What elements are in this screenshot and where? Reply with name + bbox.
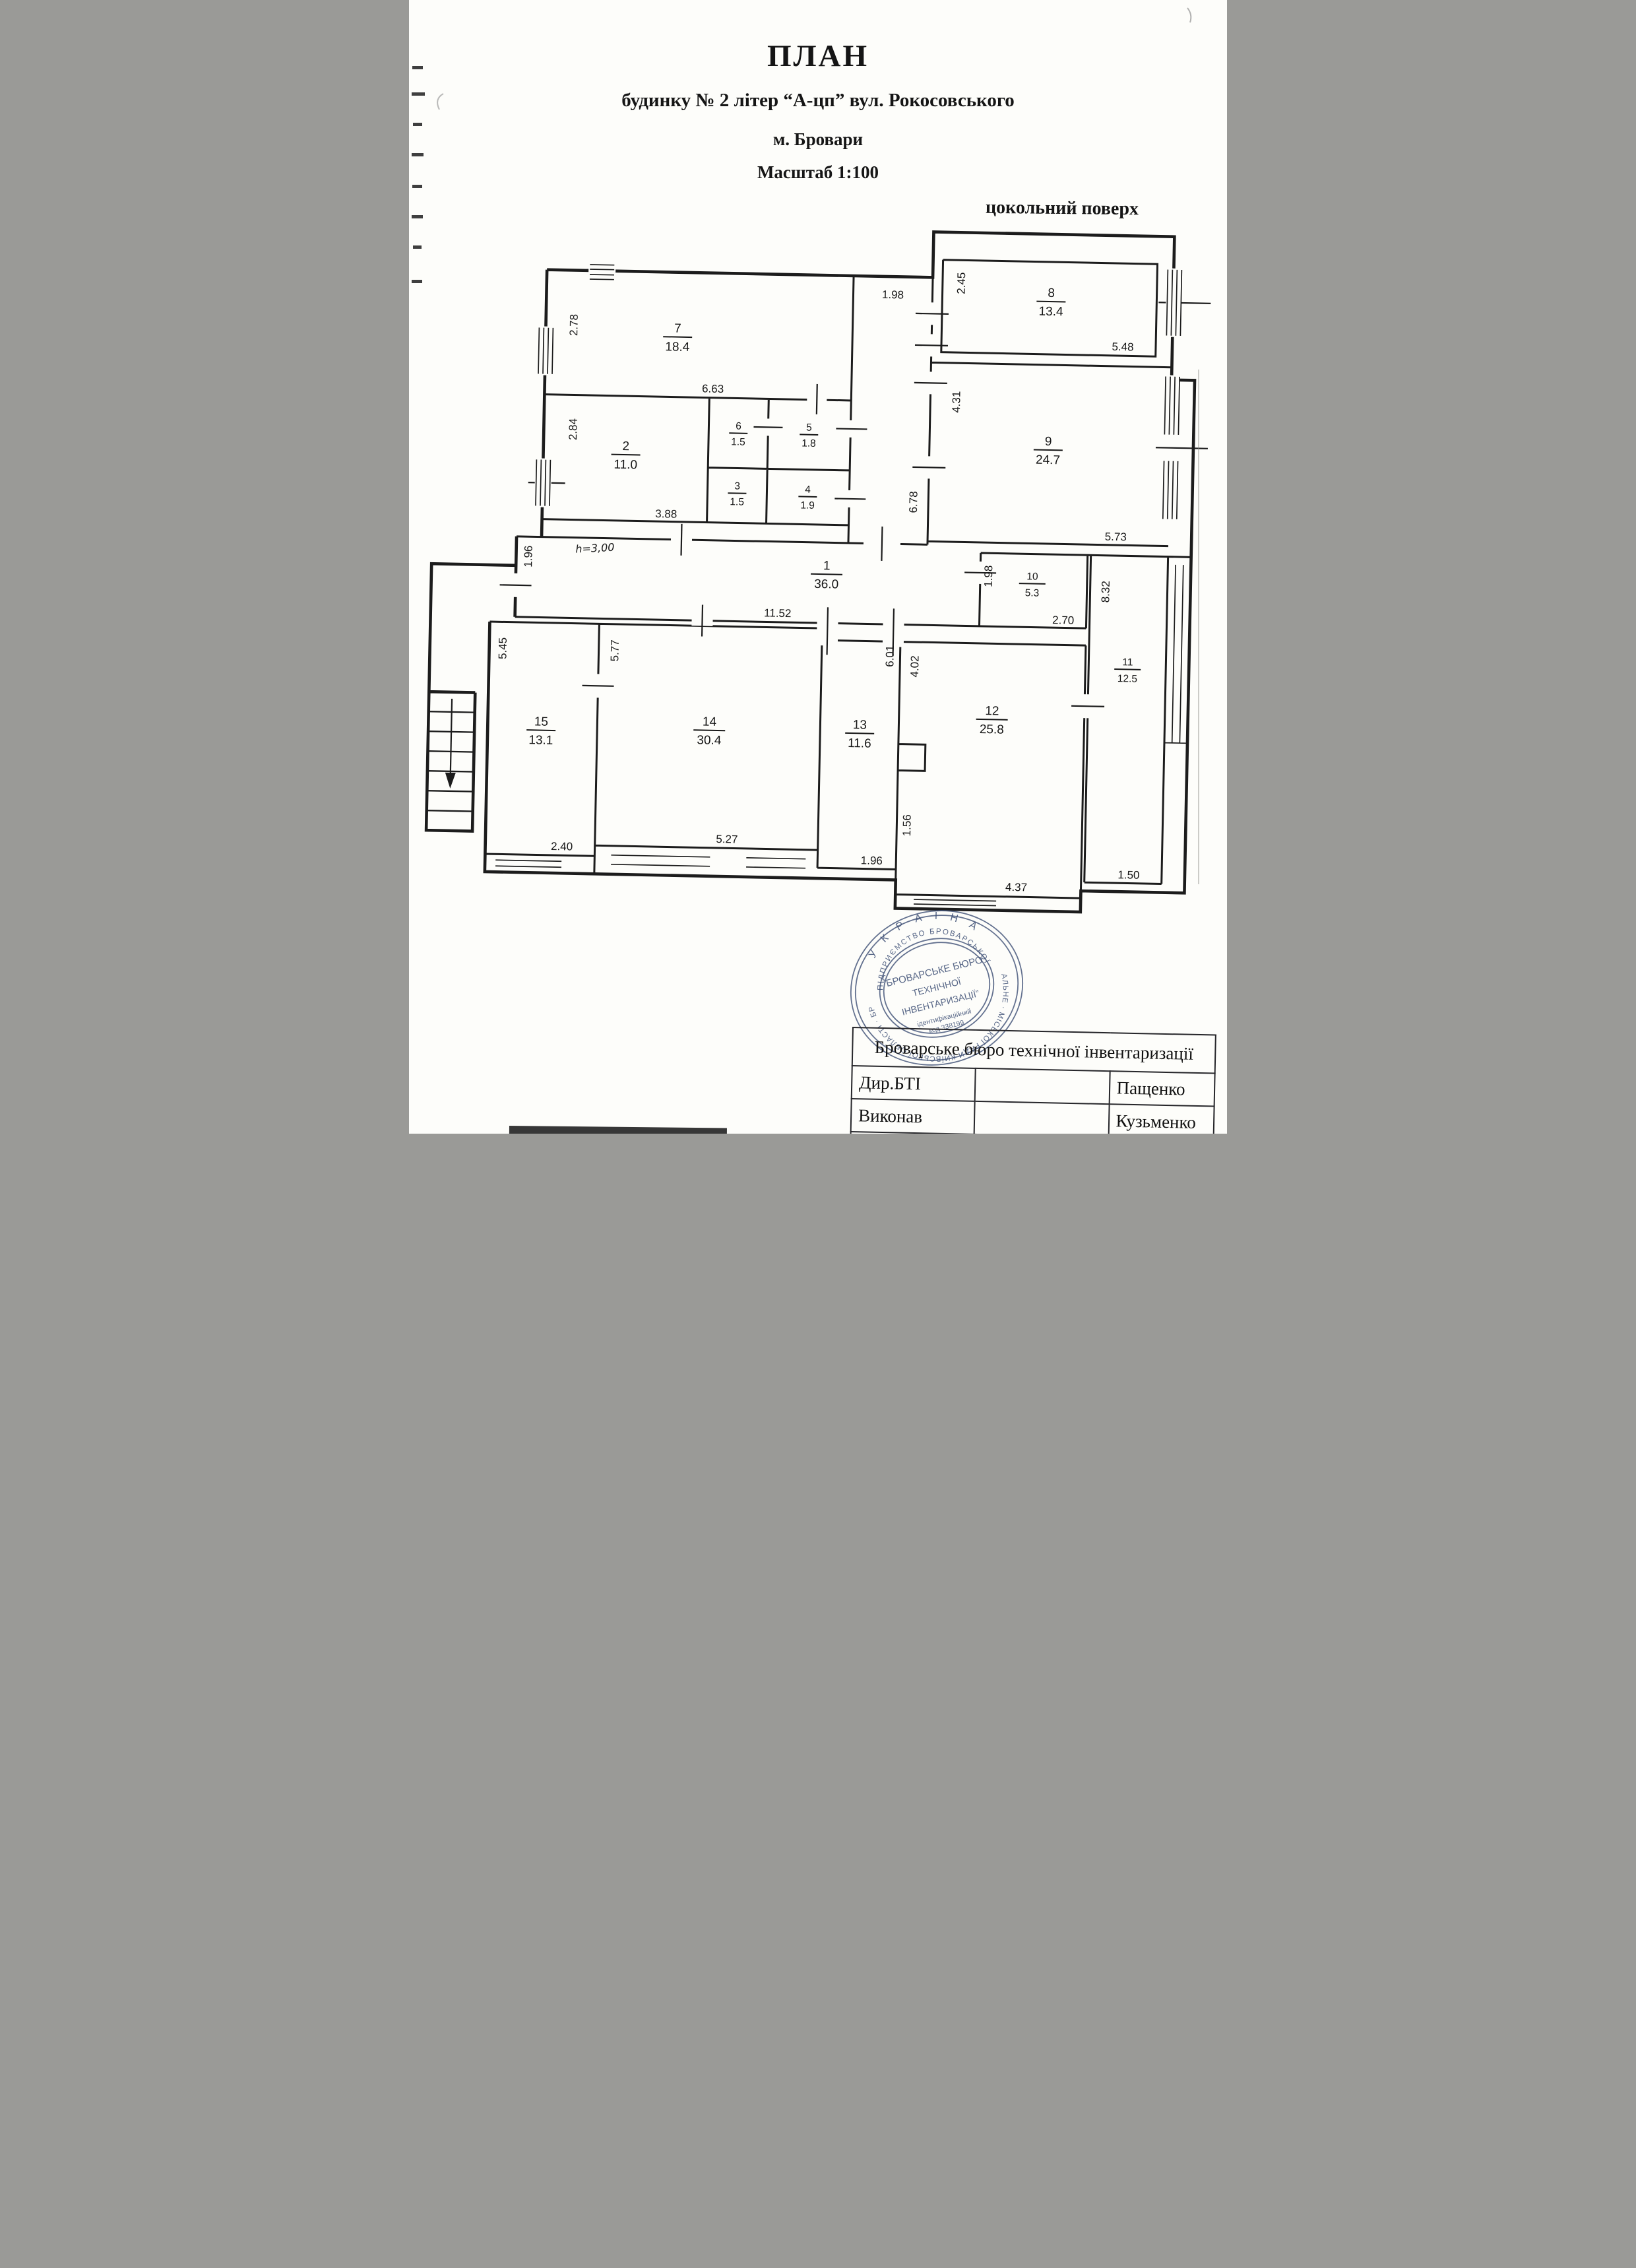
svg-text:2: 2 — [622, 439, 629, 453]
dim-1-98-top: 1.98 — [882, 288, 904, 302]
stamp-center-line3: ІНВЕНТАРИЗАЦІЇ” — [900, 988, 980, 1018]
room-label-6: 61.5 — [729, 420, 748, 448]
svg-text:18.4: 18.4 — [665, 340, 690, 354]
svg-text:3: 3 — [734, 480, 740, 492]
dim-1-96-r13: 1.96 — [861, 854, 883, 867]
dim-3-88: 3.88 — [655, 507, 677, 521]
signature-cell — [975, 1068, 1110, 1104]
dim-5-48: 5.48 — [1112, 340, 1133, 354]
svg-text:1.5: 1.5 — [731, 436, 745, 447]
svg-text:11.6: 11.6 — [848, 736, 871, 751]
dim-1-98-r10: 1.98 — [982, 565, 995, 587]
svg-text:9: 9 — [1045, 435, 1052, 449]
role-cell: Дир.БТІ — [852, 1066, 976, 1101]
svg-text:5: 5 — [806, 422, 812, 434]
dim-4-37: 4.37 — [1005, 881, 1027, 894]
room-label-12: 1225.8 — [976, 704, 1008, 737]
building-address: будинку № 2 літер “А-цп” вул. Рокосовськ… — [409, 90, 1227, 112]
room-label-11: 1112.5 — [1114, 657, 1141, 685]
dim-1-50: 1.50 — [1117, 868, 1139, 882]
svg-text:30.4: 30.4 — [697, 733, 722, 748]
dim-6-78: 6.78 — [907, 491, 920, 513]
svg-text:1.5: 1.5 — [730, 496, 744, 507]
room-label-13: 1311.6 — [845, 718, 875, 751]
dim-2-45: 2.45 — [955, 273, 968, 294]
dim-2-70: 2.70 — [1052, 614, 1074, 627]
plan-walls-outer — [425, 222, 1197, 914]
svg-text:12: 12 — [985, 704, 999, 718]
svg-text:4: 4 — [805, 484, 811, 496]
name-cell: Кузьменко — [1108, 1104, 1214, 1134]
svg-text:1: 1 — [823, 559, 831, 573]
dim-6-01: 6.01 — [883, 645, 897, 666]
svg-text:8: 8 — [1048, 286, 1055, 300]
room-label-10: 105.3 — [1019, 571, 1046, 599]
stamp-center-line1: “БРОВАРСЬКЕ БЮРО — [882, 954, 984, 990]
svg-text:7: 7 — [674, 322, 681, 336]
room-label-9: 924.7 — [1033, 435, 1063, 468]
dim-5-45: 5.45 — [496, 637, 509, 659]
svg-text:1.8: 1.8 — [802, 437, 816, 449]
svg-text:13: 13 — [853, 718, 867, 732]
page-title: ПЛАН — [409, 38, 1227, 74]
svg-text:5.3: 5.3 — [1025, 587, 1040, 599]
stamp-center-line2: ТЕХНІЧНОЇ — [911, 976, 962, 998]
svg-text:25.8: 25.8 — [980, 723, 1004, 737]
svg-text:10: 10 — [1026, 571, 1038, 582]
dim-5-73: 5.73 — [1104, 531, 1126, 544]
scanned-plan-page: ПЛАН будинку № 2 літер “А-цп” вул. Рокос… — [409, 0, 1227, 1134]
room-label-1: 136.0 — [810, 559, 842, 592]
down-arrow-icon — [445, 773, 455, 789]
svg-text:1.9: 1.9 — [800, 500, 815, 511]
window-symbols — [495, 255, 1197, 914]
room-label-3: 31.5 — [728, 480, 747, 508]
door-openings — [497, 289, 1211, 720]
dim-8-32: 8.32 — [1099, 581, 1112, 602]
room-label-7: 718.4 — [663, 321, 693, 354]
dim-4-31: 4.31 — [950, 391, 963, 412]
dim-5-27: 5.27 — [716, 833, 738, 846]
svg-text:36.0: 36.0 — [814, 577, 838, 592]
room-label-14: 1430.4 — [693, 715, 726, 748]
staircase — [427, 698, 475, 811]
plan-geometry: 136.0 211.0 31.5 41.9 51.8 61.5 718.4 81… — [425, 222, 1212, 914]
room-label-2: 211.0 — [611, 439, 641, 472]
stamp-ring-top: ПІДПРИЄМСТВО БРОВАРСЬКОЇ — [865, 915, 991, 992]
room-label-8: 813.4 — [1036, 286, 1066, 319]
dim-2-84: 2.84 — [567, 418, 580, 440]
svg-text:24.7: 24.7 — [1036, 453, 1060, 468]
svg-text:14: 14 — [703, 715, 717, 729]
svg-text:12.5: 12.5 — [1117, 673, 1138, 685]
signature-table: Броварське бюро технічної інвентаризації… — [849, 1027, 1216, 1134]
floor-label: цокольний поверх — [910, 197, 1214, 221]
height-note: h=3,00 — [575, 541, 615, 556]
signature-cell — [974, 1101, 1110, 1134]
dim-6-63: 6.63 — [702, 382, 724, 395]
name-cell: Пащенко — [1109, 1071, 1215, 1106]
room-label-15: 1513.1 — [526, 715, 556, 748]
dim-2-78: 2.78 — [567, 314, 581, 336]
dim-2-40: 2.40 — [551, 840, 573, 853]
room-label-4: 41.9 — [798, 484, 817, 511]
svg-text:15: 15 — [534, 715, 549, 729]
svg-text:13.1: 13.1 — [528, 733, 553, 748]
city-label: м. Бровари — [409, 129, 1227, 150]
scale-label: Масштаб 1:100 — [409, 162, 1227, 183]
dim-1-56: 1.56 — [900, 814, 914, 836]
dim-11-52: 11.52 — [764, 606, 792, 620]
svg-text:6: 6 — [736, 420, 741, 432]
dim-4-02: 4.02 — [908, 655, 922, 677]
svg-text:13.4: 13.4 — [1038, 305, 1063, 319]
dim-5-77: 5.77 — [608, 639, 621, 661]
svg-text:11: 11 — [1122, 657, 1133, 668]
dim-1-96-corr: 1.96 — [522, 545, 535, 567]
stamp-country: У К Р А Ї Н А — [860, 898, 985, 962]
role-cell: Виконав — [851, 1099, 975, 1134]
stamp-code-label: ідентифікаційний — [916, 1008, 972, 1029]
svg-text:11.0: 11.0 — [613, 458, 637, 472]
plan-walls-inner — [484, 251, 1197, 900]
room-label-5: 51.8 — [800, 422, 819, 449]
